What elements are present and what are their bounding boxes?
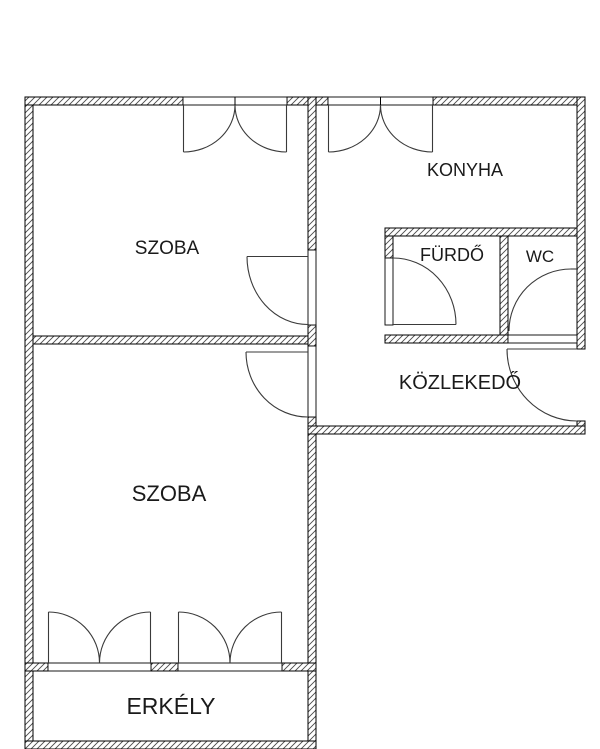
- door-opening: [48, 663, 151, 671]
- door-opening: [508, 335, 577, 343]
- wall-segment: [282, 663, 316, 671]
- door-opening: [308, 346, 316, 417]
- wall-segment: [433, 97, 585, 105]
- room-label-kozlekedo: KÖZLEKEDŐ: [399, 371, 521, 394]
- floor-plan-drawing: SZOBA KONYHA FÜRDŐ WC KÖZLEKEDŐ SZOBA ER…: [0, 0, 600, 749]
- wall-segment: [151, 663, 178, 671]
- wall-segment: [500, 236, 508, 343]
- door-opening: [385, 258, 393, 325]
- wall-segment: [385, 236, 393, 258]
- wall-segment: [25, 97, 33, 749]
- wall-segment: [308, 325, 316, 346]
- room-label-erkely: ERKÉLY: [126, 693, 215, 719]
- room-label-szoba-1: SZOBA: [135, 238, 200, 259]
- wall-segment: [385, 335, 508, 343]
- room-label-konyha: KONYHA: [427, 160, 503, 180]
- wall-segment: [385, 228, 577, 236]
- wall-segment: [25, 663, 48, 671]
- wall-segment: [33, 336, 308, 344]
- floor-plan: SZOBA KONYHA FÜRDŐ WC KÖZLEKEDŐ SZOBA ER…: [0, 0, 600, 749]
- wall-segment: [308, 97, 316, 250]
- wall-segment: [25, 741, 316, 749]
- room-label-wc: WC: [526, 247, 554, 266]
- door-opening: [308, 250, 316, 325]
- room-label-furdo: FÜRDŐ: [420, 244, 484, 265]
- room-label-szoba-2: SZOBA: [132, 481, 207, 506]
- door-opening: [178, 663, 282, 671]
- wall-segment: [25, 97, 183, 105]
- wall-segment: [308, 417, 316, 749]
- wall-segment: [577, 97, 585, 349]
- wall-segment: [308, 426, 585, 434]
